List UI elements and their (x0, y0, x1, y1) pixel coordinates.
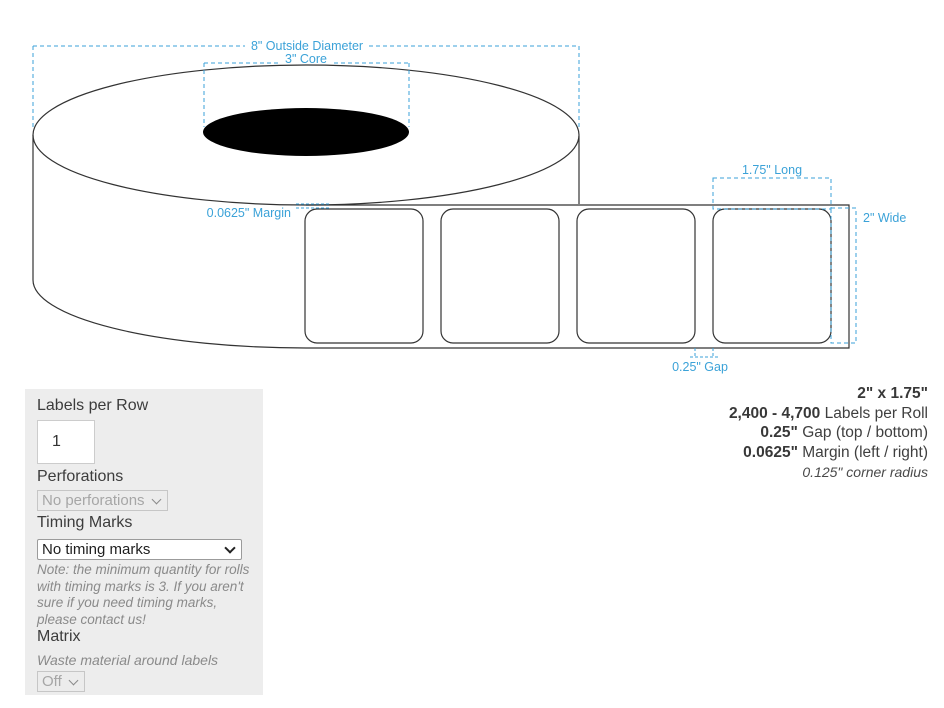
spec-per-roll-text: Labels per Roll (820, 405, 928, 422)
spec-per-roll-value: 2,400 - 4,700 (729, 405, 820, 422)
label-rect (305, 209, 423, 343)
spec-corner-radius: 0.125" corner radius (729, 463, 928, 483)
label-length-annotation: 1.75" Long (742, 163, 802, 177)
label-roll-diagram: 8" Outside Diameter 3" Core 0.0625" Marg… (0, 0, 944, 380)
timing-marks-selected-value: No timing marks (42, 541, 150, 558)
label-rect (577, 209, 695, 343)
label-specs: 2" x 1.75" 2,400 - 4,700 Labels per Roll… (729, 384, 928, 483)
perforations-label: Perforations (37, 468, 251, 486)
spec-margin-value: 0.0625" (743, 444, 798, 461)
timing-marks-label: Timing Marks (37, 514, 251, 532)
spec-gap-value: 0.25" (760, 424, 798, 441)
spec-gap-text: Gap (top / bottom) (798, 424, 928, 441)
labels-per-row-input[interactable] (37, 420, 95, 464)
label-rect (713, 209, 831, 343)
options-panel: Labels per Row Perforations No perforati… (25, 389, 263, 695)
perforations-selected-value: No perforations (42, 492, 145, 509)
chevron-down-icon (151, 494, 161, 504)
spec-labels-per-roll: 2,400 - 4,700 Labels per Roll (729, 404, 928, 424)
labels-per-row-label: Labels per Row (37, 397, 251, 415)
outside-diameter-annotation: 8" Outside Diameter (251, 39, 363, 53)
label-rect (441, 209, 559, 343)
spec-size-value: 2" x 1.75" (857, 385, 928, 402)
gap-annotation: 0.25" Gap (672, 360, 728, 374)
perforations-select[interactable]: No perforations (37, 490, 168, 511)
timing-marks-note: Note: the minimum quantity for rolls wit… (37, 562, 253, 628)
spec-gap: 0.25" Gap (top / bottom) (729, 423, 928, 443)
label-width-annotation: 2" Wide (863, 211, 906, 225)
matrix-selected-value: Off (42, 673, 62, 690)
spec-margin: 0.0625" Margin (left / right) (729, 443, 928, 463)
label-length-dimension-bracket (713, 178, 831, 209)
margin-annotation: 0.0625" Margin (207, 206, 291, 220)
core-annotation: 3" Core (285, 52, 327, 66)
spec-size: 2" x 1.75" (729, 384, 928, 404)
matrix-select[interactable]: Off (37, 671, 85, 692)
roll-core (203, 108, 409, 156)
timing-marks-select[interactable]: No timing marks (37, 539, 242, 560)
spec-margin-text: Margin (left / right) (798, 444, 928, 461)
label-width-dimension-bracket (831, 208, 856, 343)
label-roll-configurator-page: 8" Outside Diameter 3" Core 0.0625" Marg… (0, 0, 944, 708)
matrix-description: Waste material around labels (37, 652, 251, 668)
matrix-label: Matrix (37, 628, 251, 646)
chevron-down-icon (68, 675, 78, 685)
chevron-down-icon (224, 542, 235, 553)
gap-dimension-bracket (690, 348, 718, 357)
